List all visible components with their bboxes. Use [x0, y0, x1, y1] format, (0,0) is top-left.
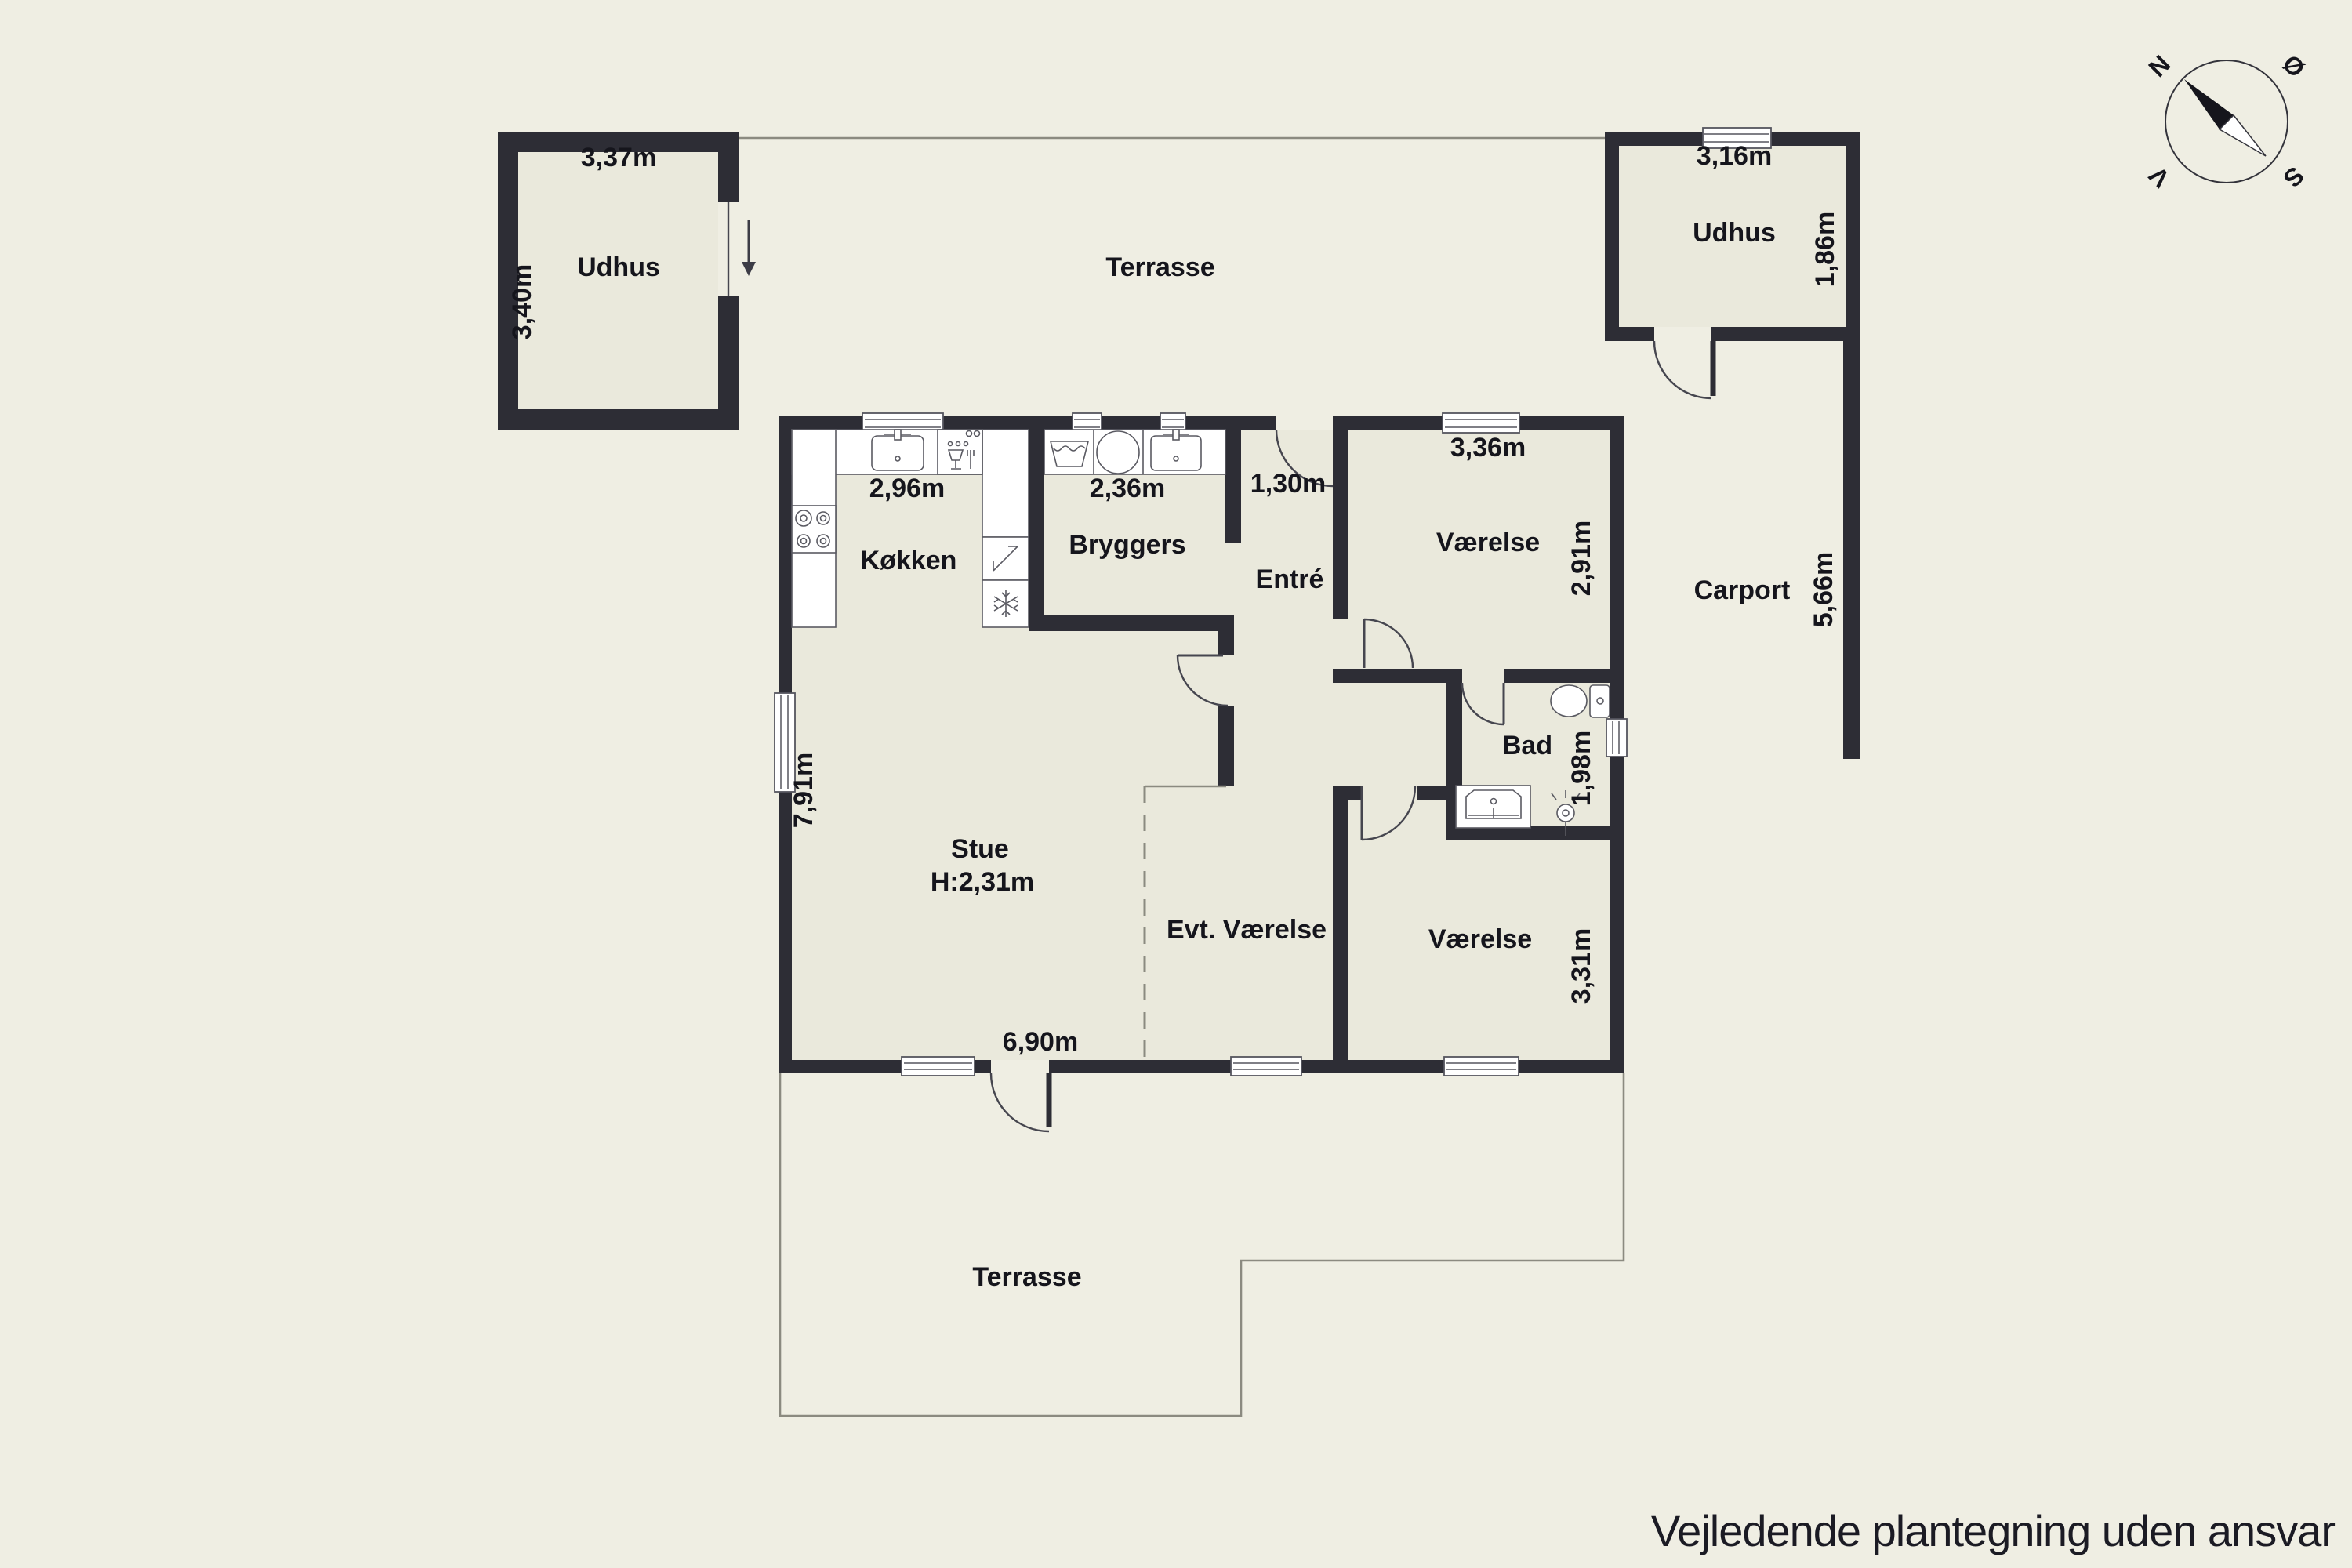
disclaimer-text: Vejledende plantegning uden ansvar — [1651, 1506, 2335, 1555]
vaerelse-ne-depth: 2,91m — [1566, 521, 1596, 596]
outbuilding-left: 3,37m Udhus 3,40m — [498, 132, 756, 430]
carport-wall — [1843, 341, 1860, 759]
stue-width: 6,90m — [1003, 1027, 1078, 1057]
terrace-door — [991, 1073, 1049, 1131]
vaerelse-ne-width: 3,36m — [1450, 433, 1526, 463]
koekken-width: 2,96m — [869, 474, 945, 503]
entre-label: Entré — [1256, 564, 1324, 594]
main-house: 2,96m Køkken 2,36m Bryggers 1,30m Entré … — [775, 413, 1627, 1131]
terrace-top-label: Terrasse — [1105, 252, 1214, 282]
terrace-top: Terrasse — [739, 138, 1605, 282]
vaerelse-se-label: Værelse — [1428, 924, 1532, 954]
stue-label: Stue — [951, 834, 1009, 864]
vaerelse-se-depth: 3,31m — [1566, 928, 1596, 1004]
compass-north: N — [2143, 49, 2176, 82]
compass-west: V — [2143, 161, 2175, 193]
terrace-bottom-label: Terrasse — [972, 1262, 1081, 1292]
floorplan-canvas: 3,37m Udhus 3,40m Terrasse 3,16m Udhus 1… — [0, 0, 2352, 1568]
bryggers-label: Bryggers — [1069, 530, 1185, 560]
entrance-arrow-icon — [742, 220, 756, 276]
compass-east: Ø — [2277, 49, 2310, 83]
carport-length: 5,66m — [1809, 552, 1838, 627]
compass-rose-icon: N Ø S V — [2143, 49, 2310, 193]
bad-window — [1606, 719, 1627, 757]
kitchen-sink-icon — [872, 430, 924, 470]
carport: Carport 5,66m — [1694, 341, 1860, 759]
evt-vaerelse-label: Evt. Værelse — [1167, 915, 1327, 945]
udhus-right-label: Udhus — [1693, 218, 1776, 248]
vanity-sink-icon — [1456, 786, 1530, 828]
vaerelse-se-window — [1444, 1057, 1519, 1076]
udhus-left-width: 3,37m — [581, 143, 656, 172]
vaerelse-ne-window — [1443, 413, 1519, 433]
toilet-icon — [1551, 685, 1610, 717]
vaerelse-ne-label: Værelse — [1436, 528, 1540, 557]
udhus-left-label: Udhus — [577, 252, 660, 282]
udhus-left-depth: 3,40m — [507, 264, 537, 339]
compass-south: S — [2278, 162, 2310, 194]
outbuilding-right: 3,16m Udhus 1,86m — [1605, 128, 1860, 398]
bad-label: Bad — [1502, 731, 1552, 760]
entre-width: 1,30m — [1250, 469, 1326, 499]
stove-icon — [792, 506, 836, 553]
terrace-bottom: Terrasse — [780, 1073, 1624, 1416]
bryggers-width: 2,36m — [1090, 474, 1165, 503]
bad-depth: 1,98m — [1566, 731, 1596, 806]
koekken-label: Køkken — [861, 546, 957, 575]
dishwasher-icon — [938, 430, 982, 474]
stue-depth: 7,91m — [789, 753, 818, 828]
utility-sink-icon — [1151, 430, 1201, 470]
electrical-panel-icon — [982, 537, 1029, 580]
stue-ceiling-height: H:2,31m — [931, 867, 1034, 897]
udhus-right-width: 3,16m — [1697, 141, 1772, 171]
udhus-right-door-arc — [1654, 341, 1711, 398]
evt-vaerelse-window — [1231, 1057, 1301, 1076]
carport-label: Carport — [1694, 575, 1791, 605]
freezer-snowflake-icon — [982, 580, 1029, 627]
udhus-right-depth: 1,86m — [1810, 212, 1840, 287]
stue-south-window — [902, 1057, 975, 1076]
